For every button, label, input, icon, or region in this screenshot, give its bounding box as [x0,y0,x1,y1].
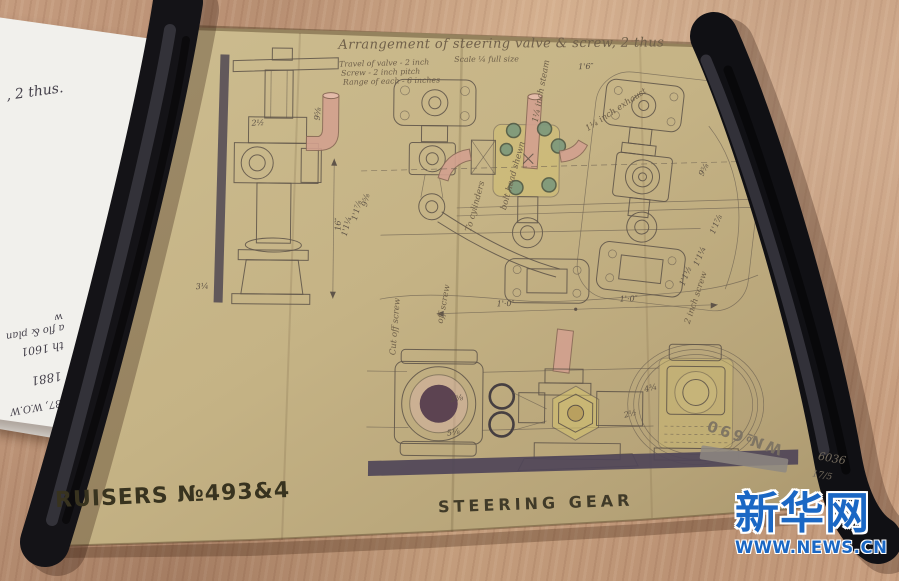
xinhua-logo-text: 新华网 [735,492,887,536]
drawing-label: 3¼ [195,281,208,291]
xinhua-url-text: WWW.NEWS.CN [735,538,887,557]
drawing-scale-note: Scale ¼ full size [454,54,519,63]
drawing-label: 2½ [250,118,264,128]
xinhua-watermark: 新华网 WWW.NEWS.CN [735,492,887,557]
news-photo: , 2 thus. a flo & plan w th 1601 1881 18… [0,0,899,581]
drawing-title: Arrangement of steering valve & screw, 2… [337,35,664,52]
drawing-label: 9⅝ [313,107,323,121]
drawing-label: 1'·0″ [620,294,638,303]
drawing-label: 1'6″ [578,62,594,71]
drawing-label: 1'·0″ [497,299,515,308]
